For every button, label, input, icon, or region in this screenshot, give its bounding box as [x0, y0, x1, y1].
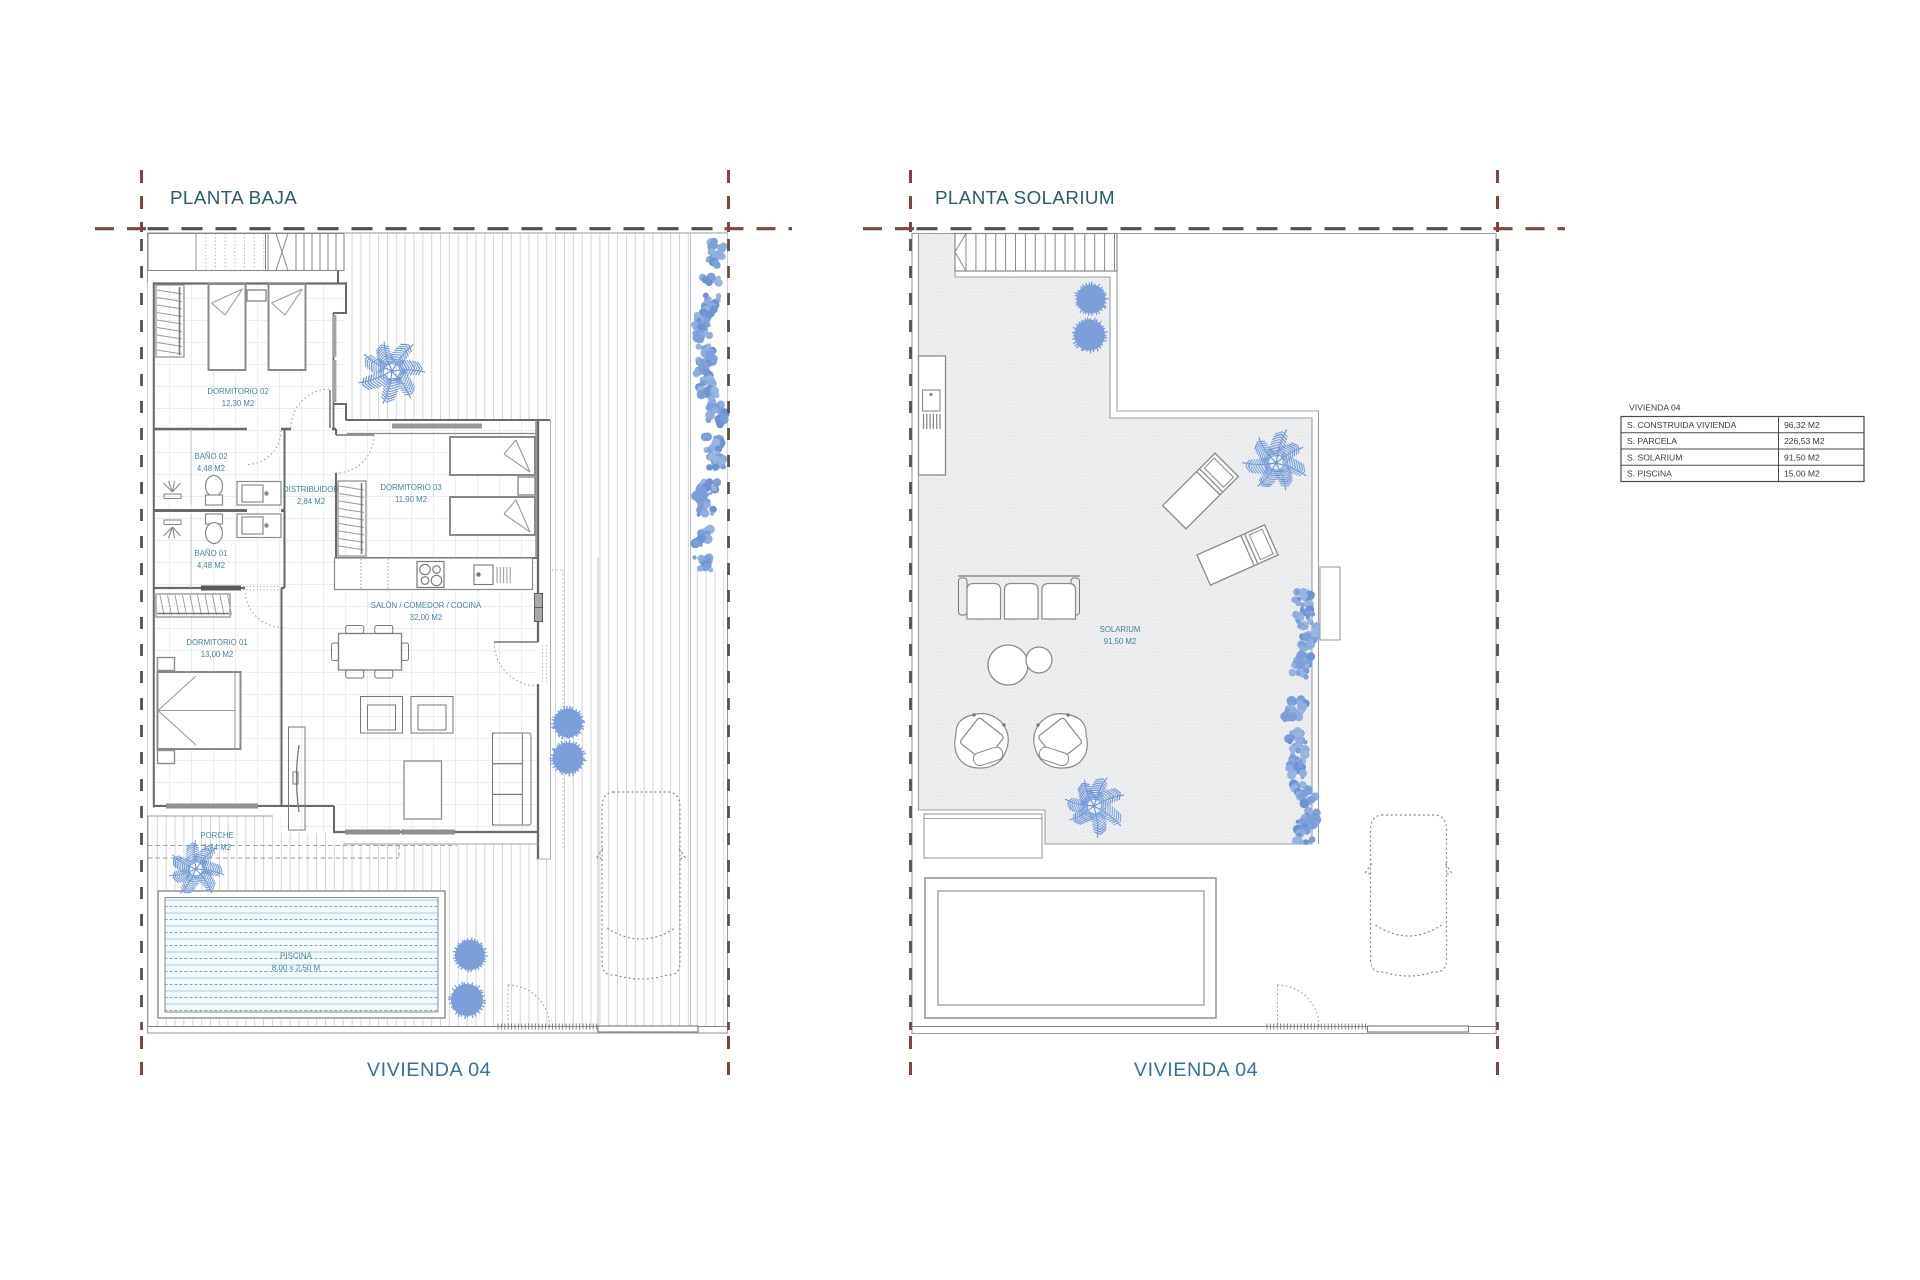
svg-text:32,00 M2: 32,00 M2	[410, 613, 443, 622]
svg-text:11,90 M2: 11,90 M2	[395, 495, 427, 504]
svg-text:S. SOLARIUM: S. SOLARIUM	[1627, 452, 1682, 462]
svg-text:DORMITORIO 03: DORMITORIO 03	[380, 483, 441, 492]
svg-text:4,48 M2: 4,48 M2	[197, 464, 225, 473]
svg-text:S. CONSTRUIDA VIVIENDA: S. CONSTRUIDA VIVIENDA	[1627, 420, 1737, 430]
svg-text:13,00 M2: 13,00 M2	[201, 650, 234, 659]
svg-text:1,74 M2: 1,74 M2	[203, 843, 231, 852]
svg-text:15,00 M2: 15,00 M2	[1784, 469, 1820, 479]
svg-text:S. PISCINA: S. PISCINA	[1627, 469, 1672, 479]
svg-text:2,84 M2: 2,84 M2	[297, 497, 325, 506]
svg-text:DORMITORIO 01: DORMITORIO 01	[186, 638, 247, 647]
svg-text:96,32 M2: 96,32 M2	[1784, 420, 1820, 430]
svg-text:PORCHE: PORCHE	[200, 831, 233, 840]
svg-text:8,00 x 2,50 M: 8,00 x 2,50 M	[272, 964, 321, 973]
svg-text:DORMITORIO 02: DORMITORIO 02	[207, 387, 268, 396]
svg-text:PLANTA SOLARIUM: PLANTA SOLARIUM	[935, 187, 1115, 208]
svg-text:PLANTA BAJA: PLANTA BAJA	[170, 187, 297, 208]
svg-text:91,50 M2: 91,50 M2	[1104, 637, 1137, 646]
svg-text:91,50 M2: 91,50 M2	[1784, 452, 1820, 462]
svg-text:4,48 M2: 4,48 M2	[197, 561, 225, 570]
svg-text:BAÑO 01: BAÑO 01	[195, 549, 228, 558]
svg-text:BAÑO 02: BAÑO 02	[195, 452, 228, 461]
svg-text:S. PARCELA: S. PARCELA	[1627, 436, 1677, 446]
svg-text:VIVIENDA 04: VIVIENDA 04	[367, 1059, 491, 1081]
svg-text:VIVIENDA 04: VIVIENDA 04	[1629, 403, 1681, 413]
svg-text:VIVIENDA 04: VIVIENDA 04	[1134, 1059, 1258, 1081]
svg-text:DISTRIBUIDOR: DISTRIBUIDOR	[283, 485, 339, 494]
svg-text:SOLARIUM: SOLARIUM	[1100, 625, 1141, 634]
svg-text:SALÓN / COMEDOR / COCINA: SALÓN / COMEDOR / COCINA	[371, 601, 482, 610]
svg-text:226,53 M2: 226,53 M2	[1784, 436, 1825, 446]
svg-text:12,30 M2: 12,30 M2	[222, 399, 255, 408]
svg-text:PISCINA: PISCINA	[280, 952, 313, 961]
